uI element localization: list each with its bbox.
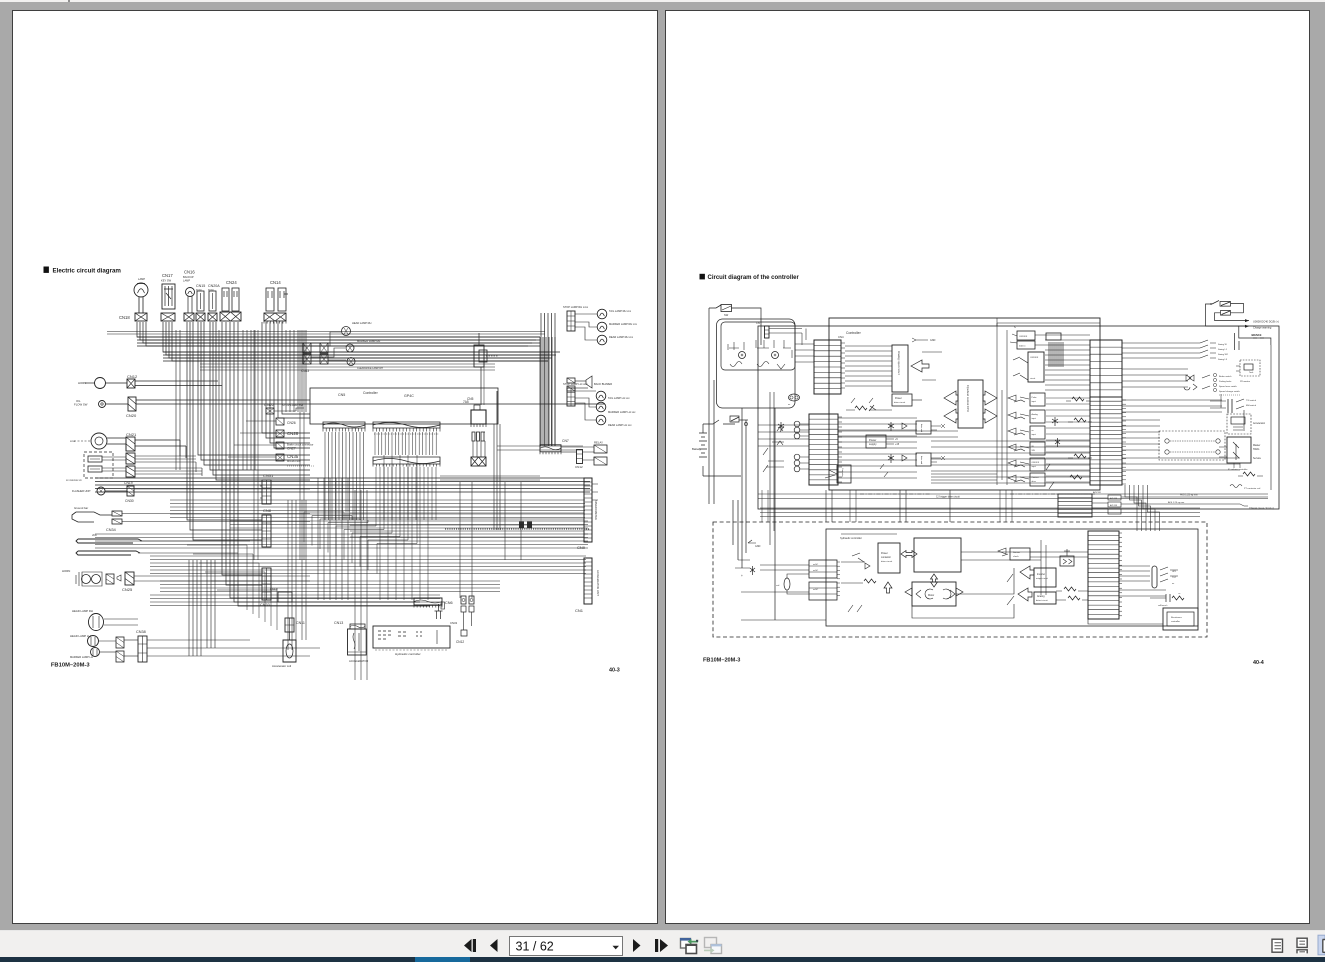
svg-text:CN28: CN28 — [287, 431, 299, 436]
svg-text:Pulse: Pulse — [1032, 397, 1038, 399]
svg-text:SW: SW — [724, 313, 729, 317]
svg-text:Swing L1: Swing L1 — [1218, 349, 1228, 351]
svg-text:CN6: CN6 — [445, 601, 453, 605]
svg-text:Sensor: Sensor — [1013, 551, 1020, 554]
svg-text:input: input — [1032, 465, 1037, 468]
svg-text:CN25: CN25 — [122, 587, 133, 592]
svg-text:MARKER LAMP RH: MARKER LAMP RH — [357, 339, 380, 343]
svg-text:T/S switch: T/S switch — [1246, 399, 1257, 402]
svg-text:supply: supply — [869, 442, 877, 446]
svg-text:input: input — [1032, 400, 1037, 403]
svg-text:ID volume controller: ID volume controller — [1228, 468, 1248, 471]
svg-text:+5: +5 — [895, 438, 898, 441]
svg-text:CN17: CN17 — [162, 273, 173, 278]
svg-text:CN33b: CN33b — [270, 587, 279, 591]
svg-text:CN22: CN22 — [264, 402, 275, 407]
svg-text:LAMP: LAMP — [138, 277, 145, 281]
svg-text:TILT: TILT — [1172, 577, 1177, 579]
svg-text:+: + — [741, 574, 743, 578]
svg-text:MH switch: MH switch — [1246, 404, 1257, 407]
svg-text:Contact: Contact — [1032, 476, 1039, 479]
svg-text:CN9: CN9 — [577, 545, 586, 550]
svg-text:REAR LAMP RH xxx: REAR LAMP RH xxx — [609, 335, 634, 339]
svg-text:fwd/rev: fwd/rev — [1019, 346, 1025, 348]
svg-text:Chassis press circuit (-): Chassis press circuit (-) — [1249, 507, 1274, 510]
svg-text:FLASHER UNIT: FLASHER UNIT — [72, 489, 91, 493]
svg-text:Ground bar: Ground bar — [74, 506, 88, 510]
svg-text:SW: SW — [1032, 450, 1035, 452]
svg-text:ON/OFF: ON/OFF — [1032, 462, 1040, 464]
svg-text:Hydraulic controller: Hydraulic controller — [395, 652, 421, 656]
svg-text:Accelerator: Accelerator — [1253, 422, 1265, 425]
svg-text:Master: Master — [1253, 444, 1261, 447]
svg-text:contactor: contactor — [881, 556, 891, 559]
svg-text:drive circuit: drive circuit — [881, 560, 892, 563]
svg-text:CN12: CN12 — [127, 374, 138, 379]
svg-text:xxSC: xxSC — [813, 589, 819, 591]
svg-text:AVS 598: AVS 598 — [1110, 504, 1117, 507]
svg-text:Analog: Analog — [1032, 413, 1038, 416]
svg-text:CN21: CN21 — [126, 432, 137, 437]
svg-text:xx: xx — [1032, 430, 1034, 432]
svg-text:CN24: CN24 — [226, 280, 237, 285]
svg-text:xx: xx — [788, 404, 791, 406]
svg-text:hydraulic controller: hydraulic controller — [840, 536, 862, 540]
svg-text:HEAD LAMP RH: HEAD LAMP RH — [352, 321, 372, 325]
svg-text:HEAD LAMP RH: HEAD LAMP RH — [72, 609, 93, 613]
svg-text:coil: coil — [776, 585, 780, 587]
svg-text:Contactor: Contactor — [841, 468, 844, 477]
svg-text:Parking brake: Parking brake — [1219, 381, 1232, 383]
svg-text:CN5: CN5 — [338, 393, 345, 397]
svg-text:Power: Power — [895, 397, 902, 400]
svg-text:MARKER LAMP LH xxx: MARKER LAMP LH xxx — [608, 410, 636, 414]
svg-text:ACCELERATOR: ACCELERATOR — [349, 659, 368, 663]
svg-text:Analog: Analog — [1037, 595, 1045, 598]
svg-text:CN13: CN13 — [301, 369, 309, 373]
svg-text:FB10M–20M-3: FB10M–20M-3 — [703, 658, 740, 664]
svg-text:Resistance: Resistance — [1171, 616, 1183, 619]
svg-text:circuit: circuit — [1030, 377, 1036, 380]
svg-text:Flywheel control CPU: Flywheel control CPU — [966, 385, 970, 412]
svg-text:output circuit: output circuit — [1036, 577, 1048, 580]
svg-text:LAMP: LAMP — [183, 279, 190, 283]
svg-text:GND: GND — [755, 545, 761, 548]
svg-text:40-3: 40-3 — [609, 668, 620, 674]
svg-text:CN12: CN12 — [456, 640, 464, 644]
svg-text:self branch: self branch — [1158, 604, 1167, 607]
svg-text:GP4C: GP4C — [404, 394, 414, 398]
svg-text:CN20: CN20 — [126, 413, 137, 418]
svg-text:input: input — [1032, 417, 1037, 420]
svg-text:controller: controller — [1171, 620, 1180, 623]
svg-text:drive: drive — [1032, 481, 1037, 483]
svg-text:CLEARANCE LAMP RH: CLEARANCE LAMP RH — [357, 367, 383, 370]
svg-text:STOP LAMP RH xxxx: STOP LAMP RH xxxx — [563, 305, 589, 309]
svg-text:KEY SW: KEY SW — [161, 279, 172, 283]
svg-text:ACCELERATOR UNIT: ACCELERATOR UNIT — [596, 570, 600, 596]
svg-text:UP1: UP1 — [1172, 571, 1177, 573]
svg-text:Service: Service — [1253, 457, 1262, 460]
svg-text:Brake switch: Brake switch — [1219, 375, 1232, 378]
svg-text:Swing W2: Swing W2 — [1218, 354, 1229, 356]
svg-text:PT contactor coil: PT contactor coil — [1244, 487, 1261, 490]
svg-text:PR monitor: PR monitor — [1240, 380, 1250, 383]
svg-text:MARKER LAMP LH: MARKER LAMP LH — [70, 655, 93, 659]
svg-text:Controller: Controller — [846, 331, 862, 335]
svg-text:STOP LAMP LH xxxx: STOP LAMP LH xxxx — [563, 382, 588, 386]
svg-text:drive unit: drive unit — [920, 456, 923, 465]
svg-text:input: input — [1032, 433, 1037, 436]
svg-text:Swing L3: Swing L3 — [1218, 359, 1228, 361]
svg-text:ON/OFF: ON/OFF — [1019, 336, 1028, 338]
svg-text:+x: +x — [1178, 593, 1181, 595]
svg-text:REAR LAMP LH xxx: REAR LAMP LH xxx — [608, 423, 632, 427]
svg-text:+15: +15 — [895, 443, 900, 446]
svg-text:xNx: xNx — [92, 533, 97, 537]
svg-text:FB10M–20M-3: FB10M–20M-3 — [51, 663, 90, 669]
svg-text:TAIL LAMP LH xxx: TAIL LAMP LH xxx — [608, 396, 630, 400]
svg-text:xx xxxxxxx xx: xx xxxxxxx xx — [66, 479, 82, 482]
svg-text:Accelerator coil: Accelerator coil — [272, 664, 291, 668]
svg-text:CN38: CN38 — [136, 630, 146, 634]
svg-text:U0008 DC40 DC/B (+): U0008 DC40 DC/B (+) — [1253, 320, 1279, 324]
svg-text:xxxx: xxxx — [70, 440, 76, 443]
svg-text:Inverter: Inverter — [1037, 573, 1045, 576]
svg-text:drive circuit: drive circuit — [894, 401, 905, 404]
svg-text:Analog input circuit: Analog input circuit — [897, 351, 901, 375]
svg-text:CN34: CN34 — [106, 528, 116, 532]
svg-text:CN13: CN13 — [334, 621, 343, 625]
svg-text:7A5: 7A5 — [463, 400, 469, 404]
svg-text:Motor: Motor — [928, 594, 934, 597]
svg-text:CN20A: CN20A — [208, 284, 220, 288]
svg-text:Speed change switch: Speed change switch — [1219, 390, 1241, 393]
svg-text:Electric circuit diagram: Electric circuit diagram — [53, 267, 122, 274]
svg-text:CN4: CN4 — [838, 335, 844, 339]
svg-text:SW/G: SW/G — [1253, 448, 1260, 451]
svg-text:GND: GND — [930, 339, 936, 342]
svg-text:xxSC: xxSC — [813, 570, 819, 572]
svg-text:Power: Power — [869, 438, 876, 442]
svg-text:31 / 62: 31 / 62 — [516, 940, 554, 954]
svg-text:ON/OFF: ON/OFF — [1030, 357, 1039, 359]
svg-text:MARKER LAMP RH xxx: MARKER LAMP RH xxx — [609, 322, 638, 326]
svg-text:Circuit diagram of the control: Circuit diagram of the controller — [708, 275, 800, 281]
svg-text:40-4: 40-4 — [1253, 660, 1264, 666]
svg-text:BACK BUZZER: BACK BUZZER — [594, 382, 612, 386]
svg-text:CN12: CN12 — [575, 465, 583, 469]
svg-text:BACKUP: BACKUP — [183, 275, 194, 279]
svg-text:CN16: CN16 — [184, 270, 195, 275]
svg-text:CN: CN — [756, 321, 760, 325]
svg-text:CN30: CN30 — [125, 499, 134, 503]
svg-text:CN18: CN18 — [119, 315, 130, 320]
svg-text:CN35: CN35 — [287, 454, 299, 459]
svg-text:Controller: Controller — [363, 391, 379, 395]
svg-text:CN15: CN15 — [196, 284, 205, 288]
svg-text:C/J trigger drive circuit: C/J trigger drive circuit — [936, 496, 960, 499]
svg-text:AVS 1.25 sq mm: AVS 1.25 sq mm — [1168, 501, 1184, 504]
svg-text:FLOW SW: FLOW SW — [74, 403, 88, 407]
svg-text:CN7: CN7 — [562, 439, 569, 443]
svg-text:CN11: CN11 — [296, 621, 305, 625]
svg-text:Spare lever switch: Spare lever switch — [1219, 385, 1238, 388]
svg-text:MICRO-SW: MICRO-SW — [287, 459, 301, 463]
svg-text:CN32: CN32 — [450, 621, 458, 625]
svg-text:CN27: CN27 — [287, 447, 296, 451]
svg-text:SPEEDOMETER: SPEEDOMETER — [594, 500, 598, 520]
svg-text:Swing W: Swing W — [1218, 344, 1228, 346]
svg-text:drive unit: drive unit — [920, 424, 923, 433]
svg-text:S: S — [1014, 325, 1016, 329]
svg-text:xxSC: xxSC — [813, 564, 819, 566]
svg-text:CN31: CN31 — [263, 473, 274, 478]
svg-text:HORN: HORN — [62, 569, 70, 573]
svg-text:CN8: CN8 — [263, 508, 272, 513]
svg-text:CN26: CN26 — [287, 421, 296, 425]
svg-text:TAIL LAMP RH xxx: TAIL LAMP RH xxx — [609, 309, 632, 313]
svg-text:CN14: CN14 — [270, 280, 281, 285]
svg-text:CN1: CN1 — [575, 608, 584, 613]
svg-text:HEAD LAMP LH: HEAD LAMP LH — [70, 634, 90, 638]
svg-text:RELAY: RELAY — [594, 441, 603, 445]
svg-text:xx: xx — [1172, 583, 1175, 585]
svg-text:Tank: Tank — [1249, 372, 1253, 374]
svg-text:AVS 598: AVS 598 — [1093, 491, 1102, 494]
svg-text:Power: Power — [881, 552, 888, 555]
svg-text:check: check — [1013, 556, 1020, 558]
svg-text:detect circuit: detect circuit — [1036, 599, 1048, 602]
svg-text:BRAKE: BRAKE — [1252, 333, 1262, 337]
svg-text:Charge warning: Charge warning — [1253, 325, 1272, 329]
